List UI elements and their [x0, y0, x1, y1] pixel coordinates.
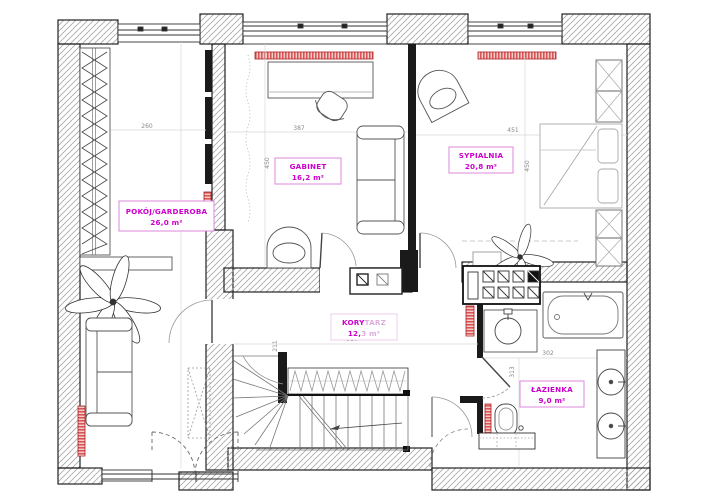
- wall-bottom-stairs: [228, 448, 432, 470]
- room-area-korytarz: 12,3 m²: [348, 329, 380, 338]
- wall-tee-junction: [400, 250, 418, 292]
- wall-top-left-pier: [58, 20, 118, 44]
- washbasin: [484, 309, 537, 352]
- curtain: [246, 55, 250, 223]
- wall-left: [58, 44, 80, 468]
- floor-plan: 260 387 450 451 450 510 211 302 313 POKÓ…: [0, 0, 710, 500]
- wall-bathroom-west-lower: [477, 396, 483, 434]
- radiator-gabinet: [255, 52, 373, 59]
- dimension-450-sypialnia: 450: [524, 160, 531, 172]
- window-sypialnia: [468, 22, 562, 44]
- couch: [357, 126, 404, 234]
- dimension-450-gabinet: 450: [264, 157, 271, 169]
- wall-segment: [205, 97, 212, 139]
- room-label-gabinet: GABINET 16,2 m²: [275, 158, 341, 184]
- dimension-211: 211: [272, 340, 279, 352]
- wall-gabinet-south-west: [224, 268, 320, 292]
- stairs-balustrade: [278, 368, 410, 452]
- door-gabinet: [320, 233, 356, 268]
- dimension-451: 451: [507, 127, 519, 134]
- wardrobe-sypialnia-bottom: [596, 210, 622, 266]
- room-name-sypialnia: SYPIALNIA: [459, 151, 504, 160]
- wall-segment: [205, 144, 212, 184]
- radiator-bath-upper: [466, 306, 474, 336]
- door-sypialnia: [420, 233, 456, 268]
- wall-bottom-step: [179, 472, 233, 490]
- room-name-korytarz: KORYTARZ: [342, 318, 386, 327]
- wall-top-right-pier: [562, 14, 650, 44]
- armchair-sypialnia: [411, 63, 469, 122]
- door-stairs-landing: [430, 397, 472, 467]
- bed: [540, 124, 622, 208]
- vent-shaft: [350, 268, 402, 294]
- wall-bottom-left: [58, 468, 102, 484]
- radiator-pokoj-west: [78, 406, 85, 456]
- wall-bathroom-west-upper: [477, 302, 483, 358]
- door-opening-pokoj: [205, 299, 234, 344]
- washer-dryer-column: [597, 350, 626, 458]
- dimension-387: 387: [293, 125, 305, 132]
- room-label-korytarz: KORYTARZ 12,3 m²: [331, 314, 397, 340]
- shelf-unit: [463, 266, 540, 304]
- sofa: [86, 318, 132, 426]
- window-pokoj-top: [118, 24, 200, 42]
- armchair-gabinet: [267, 227, 311, 268]
- floor-plan-page: 260 387 450 451 450 510 211 302 313 POKÓ…: [0, 0, 710, 500]
- dimension-313: 313: [509, 366, 516, 378]
- stairs: [233, 356, 410, 452]
- wall-gabinet-sypialnia: [408, 44, 416, 250]
- radiator-sypialnia: [478, 52, 556, 59]
- sypialnia-furniture: [411, 60, 622, 291]
- room-area-pokoj: 26,0 m²: [150, 218, 182, 227]
- room-name-pokoj: POKÓJ/GARDEROBA: [126, 207, 208, 216]
- toilet-paper-holder: [519, 426, 523, 430]
- wardrobe-rail: [80, 48, 110, 255]
- room-area-sypialnia: 20,8 m²: [465, 162, 497, 171]
- bathtub: [543, 292, 623, 338]
- room-label-sypialnia: SYPIALNIA 20,8 m²: [449, 147, 513, 173]
- bathroom-fixtures: [479, 292, 626, 458]
- desk: [268, 62, 373, 98]
- stairs-direction-arrow: [330, 423, 402, 430]
- wall-bottom-bath: [432, 468, 650, 490]
- radiator-bath-lower: [485, 404, 491, 434]
- dimension-302: 302: [542, 350, 554, 357]
- room-area-lazienka: 9,0 m²: [538, 396, 565, 405]
- room-label-pokoj: POKÓJ/GARDEROBA 26,0 m²: [119, 201, 214, 231]
- wall-top-pier-3: [387, 14, 468, 44]
- wall-top-pier-2: [200, 14, 243, 44]
- wardrobe-sypialnia-top: [596, 60, 622, 122]
- room-name-lazienka: ŁAZIENKA: [530, 385, 573, 394]
- room-area-gabinet: 16,2 m²: [292, 173, 324, 182]
- wall-segment: [205, 50, 212, 92]
- wall-right: [627, 44, 650, 490]
- pokoj-furniture: [64, 48, 210, 438]
- door-bathroom: [482, 357, 510, 398]
- room-label-lazienka: ŁAZIENKA 9,0 m²: [520, 381, 584, 407]
- window-gabinet: [243, 22, 387, 44]
- room-name-gabinet: GABINET: [290, 162, 327, 171]
- dimension-260: 260: [141, 123, 153, 130]
